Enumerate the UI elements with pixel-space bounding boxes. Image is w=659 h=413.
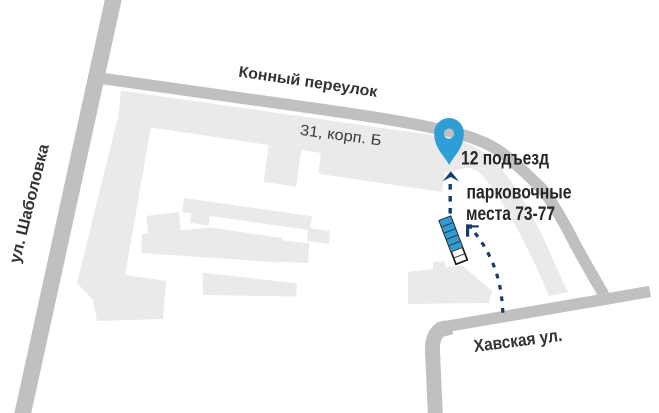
svg-text:12 подъезд: 12 подъезд — [461, 148, 549, 169]
svg-text:места 73-77: места 73-77 — [466, 204, 555, 225]
svg-text:парковочные: парковочные — [467, 183, 572, 204]
